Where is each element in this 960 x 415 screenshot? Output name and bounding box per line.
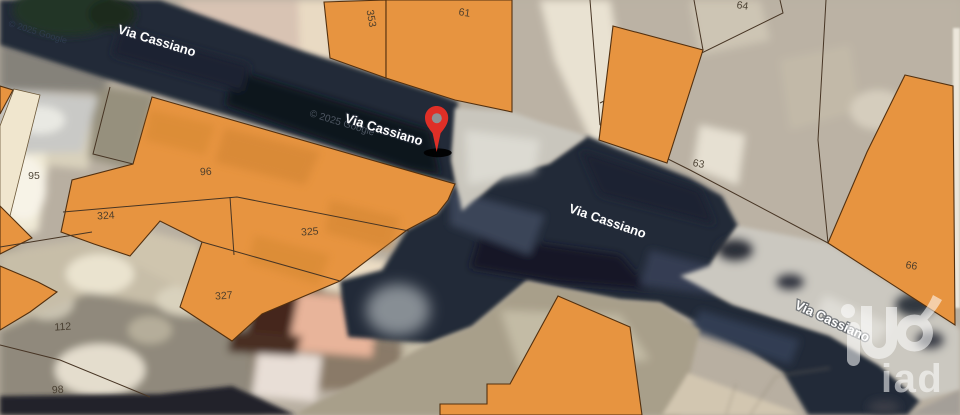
svg-text:63: 63	[692, 157, 706, 171]
svg-text:327: 327	[215, 289, 233, 302]
svg-text:98: 98	[52, 384, 65, 397]
svg-text:325: 325	[301, 225, 319, 238]
svg-text:324: 324	[97, 210, 115, 223]
svg-text:95: 95	[28, 170, 40, 182]
svg-text:iad: iad	[881, 357, 943, 401]
svg-text:96: 96	[200, 166, 212, 179]
svg-text:112: 112	[54, 320, 72, 333]
svg-text:64: 64	[736, 0, 749, 13]
svg-text:66: 66	[905, 259, 918, 273]
svg-text:61: 61	[458, 6, 471, 20]
